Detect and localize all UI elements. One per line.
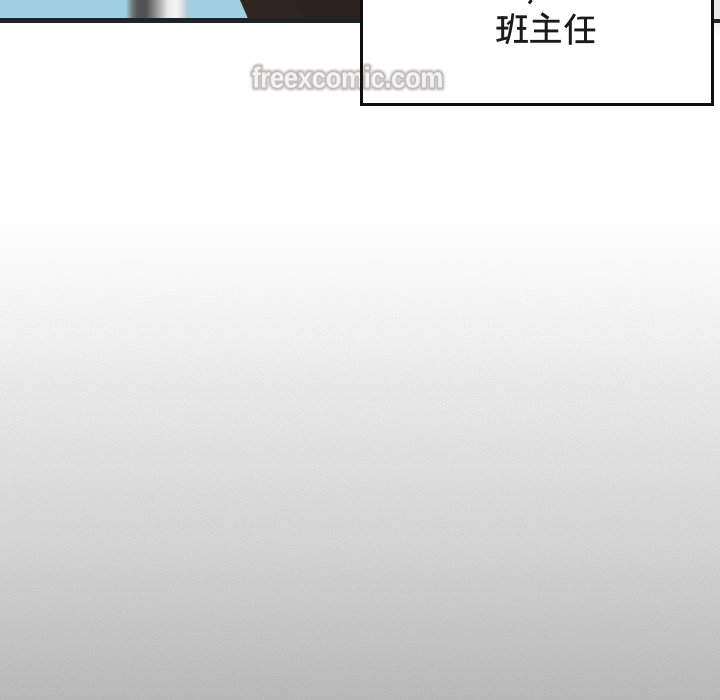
svg-text:freexcomic.com: freexcomic.com (252, 63, 443, 95)
